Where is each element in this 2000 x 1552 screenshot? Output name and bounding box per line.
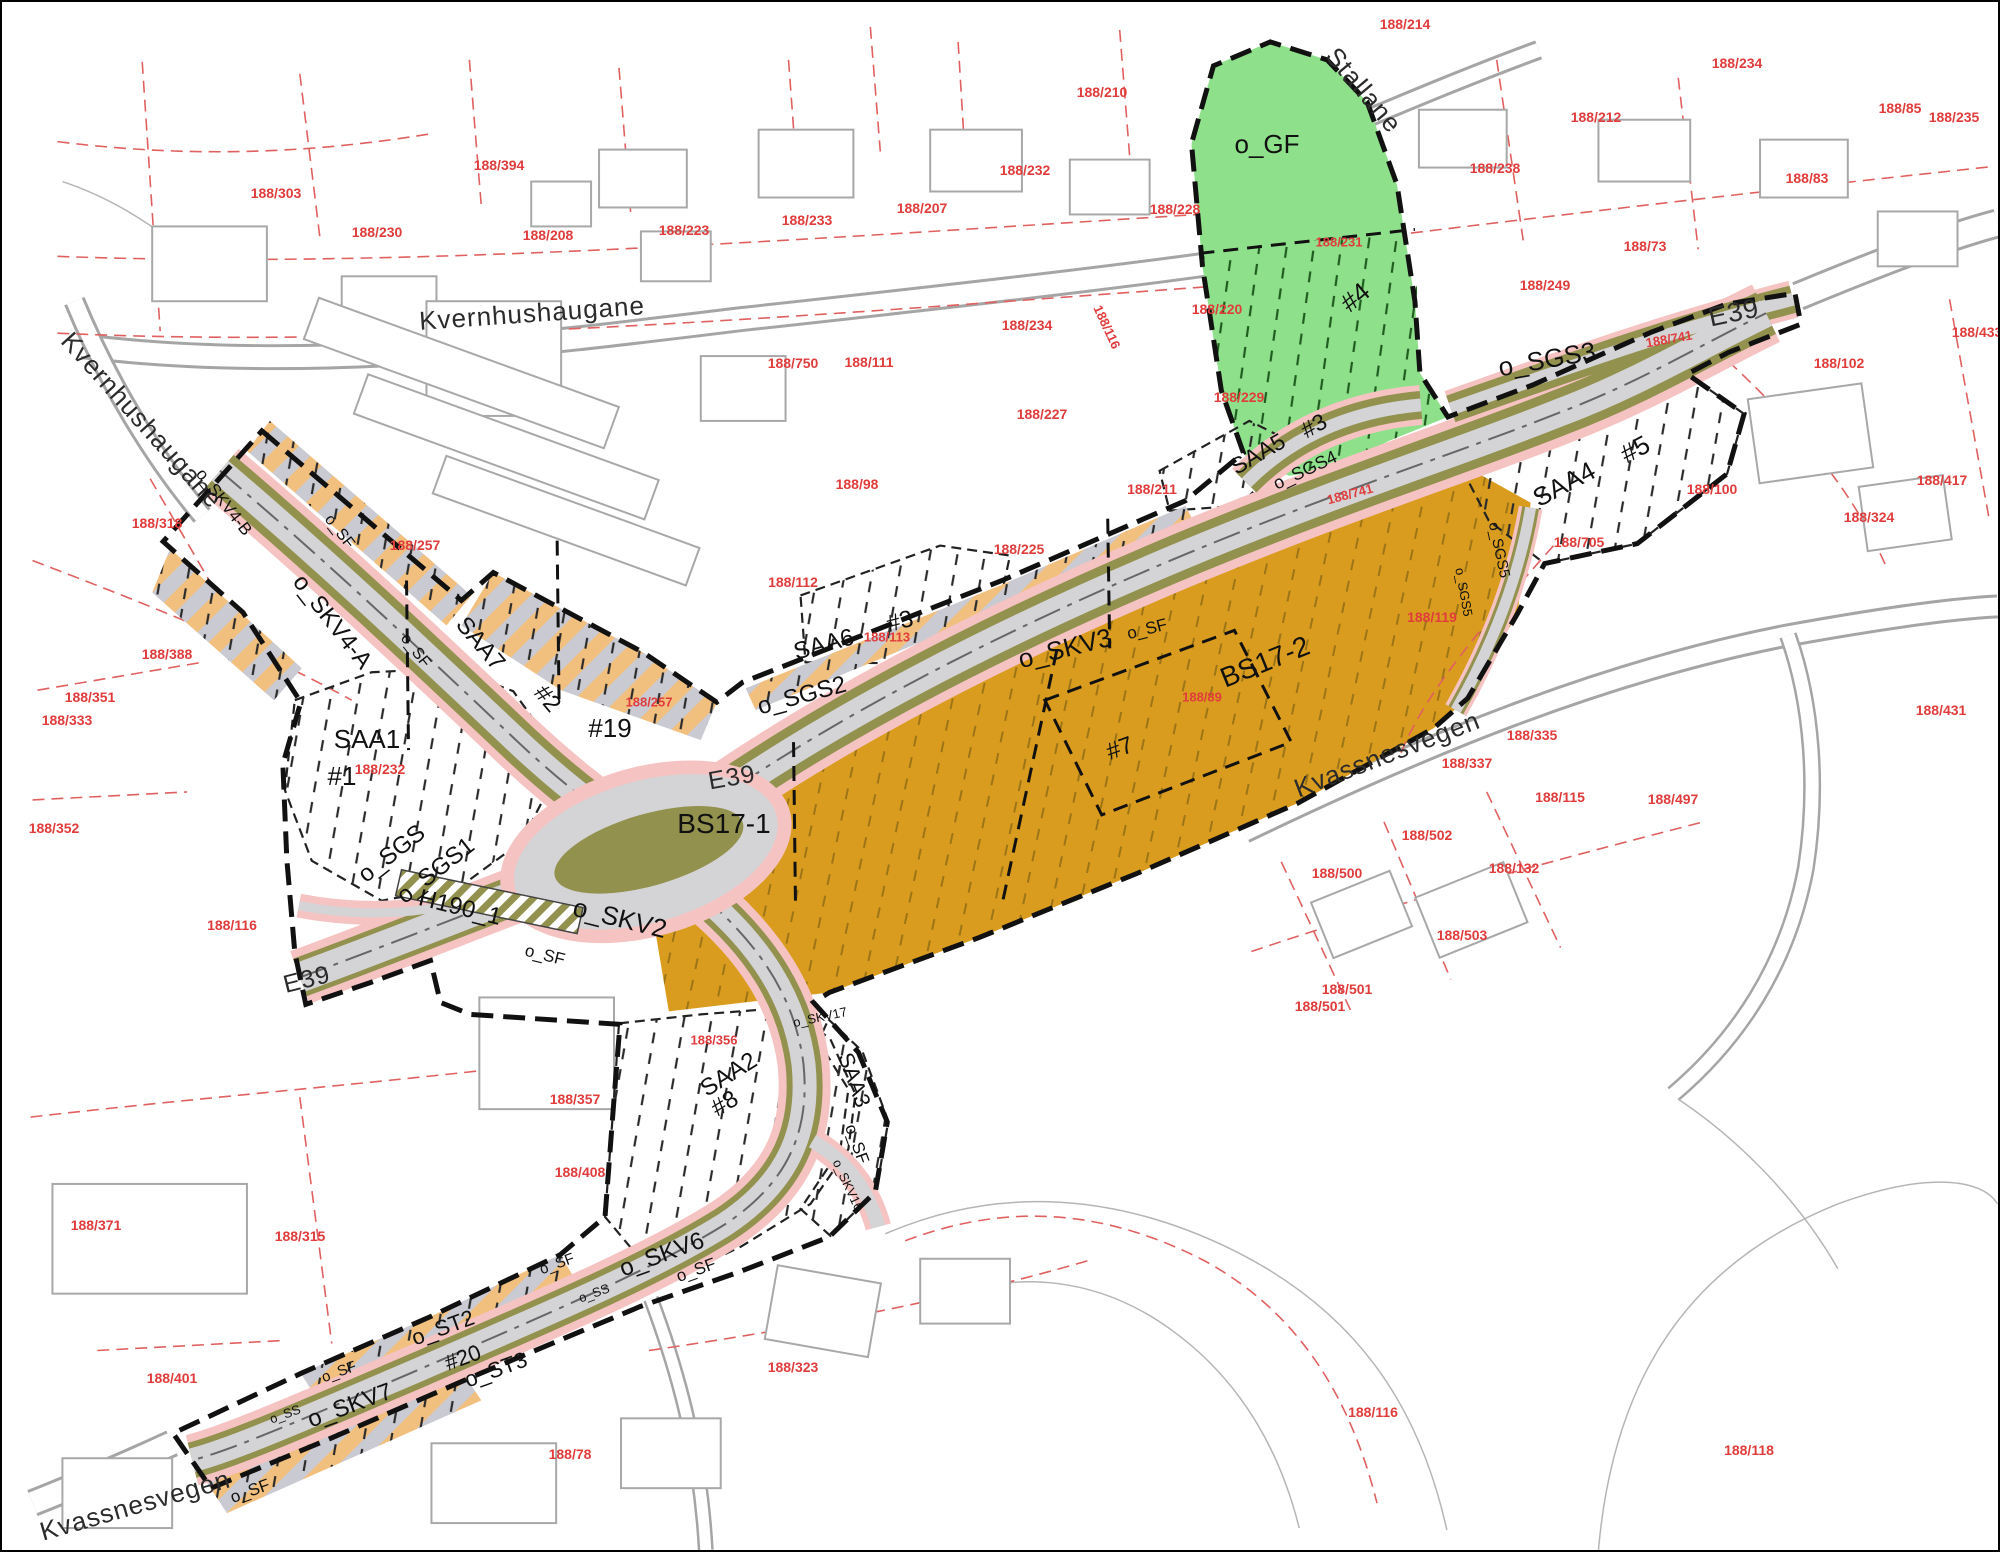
plan-drawing [2,2,1998,1550]
zoning-plan-map: KvernhushauganeKvernhushauganeStallaneE3… [0,0,2000,1552]
